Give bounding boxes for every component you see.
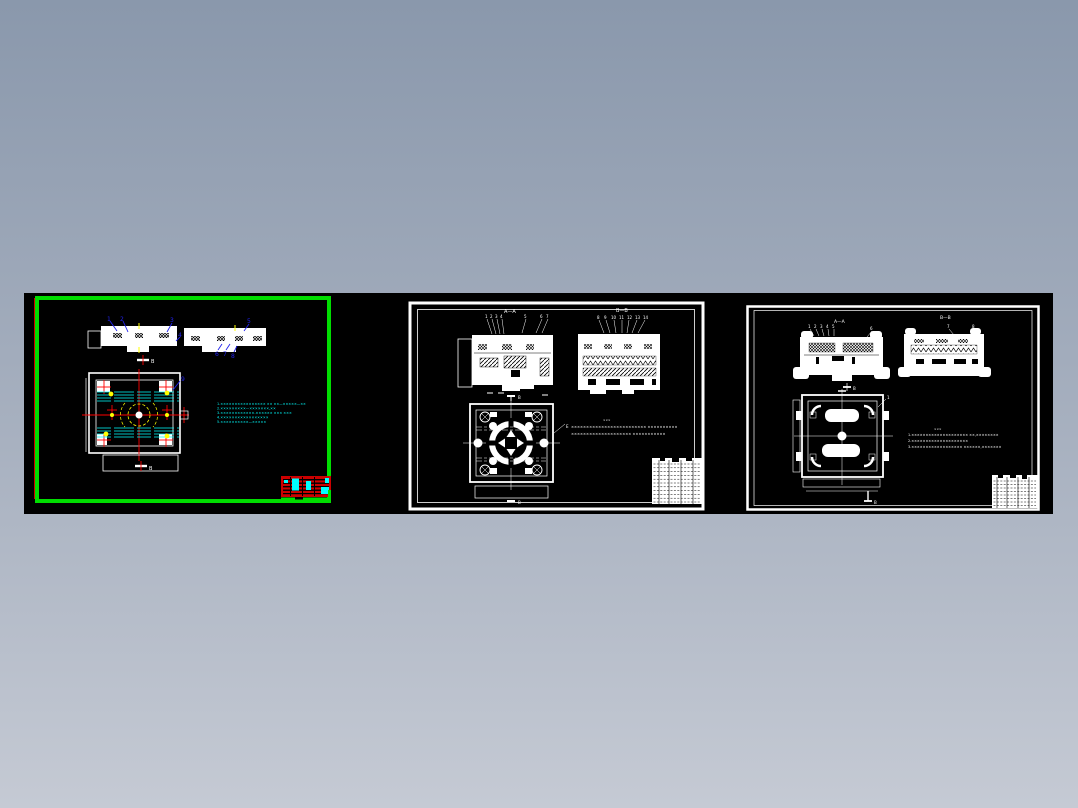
section-mark-top: B bbox=[137, 355, 155, 365]
note-line: 4.××××××××××××××××× bbox=[217, 416, 269, 420]
note-line: 3.×××××××××××××××××× ××××××,××××××× bbox=[908, 445, 1002, 449]
notes-header: ××× bbox=[603, 418, 611, 422]
callout: 3 bbox=[820, 324, 823, 329]
section-view-top: 1 2 3 4 5 6 7 8 B bbox=[88, 316, 266, 365]
callout: 9 bbox=[604, 315, 607, 320]
section-letter-top: B bbox=[518, 395, 521, 400]
callout: 8 bbox=[597, 315, 600, 320]
callout: 1 bbox=[808, 324, 811, 329]
section-letter-bottom: B bbox=[874, 500, 877, 505]
callout-leaders bbox=[487, 319, 645, 334]
callout-1: 1 bbox=[107, 316, 111, 323]
note-line: ××××××××××××××××××××××××× ×××××××××× bbox=[571, 425, 678, 429]
cad-sheet-1: 1 2 3 4 5 6 7 8 B bbox=[39, 300, 327, 499]
callout: 4 bbox=[500, 314, 503, 319]
callout-6: 6 bbox=[215, 351, 219, 358]
notes-block: 1.×××××××××××××××× ×× ××—×××××—×× 2.××××… bbox=[217, 402, 306, 424]
callout: 12 bbox=[627, 315, 633, 320]
note-line: ×××××××××××××××××××× ××××××××××× bbox=[571, 432, 666, 436]
callout-7: 7 bbox=[223, 351, 227, 358]
callout: 6 bbox=[870, 326, 873, 331]
note-line: 2.×××××××××××××××××××× bbox=[908, 439, 968, 443]
view-title-b: B—B bbox=[940, 315, 951, 321]
callout: 4 bbox=[826, 324, 829, 329]
callout-2: 2 bbox=[120, 316, 124, 323]
callout: 7 bbox=[947, 324, 950, 329]
section-view-a bbox=[458, 335, 553, 393]
drawing-thumbnail-2[interactable]: 1 2 3 4 5 6 7 8 9 10 11 12 13 14 A—A B—B bbox=[408, 300, 705, 512]
sheet-inner-border bbox=[754, 311, 1032, 506]
callout-4: 4 bbox=[178, 332, 182, 339]
plan-view: B B E bbox=[463, 395, 569, 505]
view-title-a: A—A bbox=[834, 319, 846, 325]
section-mark-mid: B bbox=[843, 383, 856, 391]
callout-3: 3 bbox=[170, 317, 174, 324]
section-view-a: B bbox=[793, 331, 890, 391]
callout: 1 bbox=[485, 314, 488, 319]
callout-8: 8 bbox=[231, 353, 235, 360]
note-line: 1.×××××××××××××××× ×× ××—×××××—×× bbox=[217, 402, 306, 406]
drawing-thumbnail-3[interactable]: B bbox=[746, 305, 1040, 511]
callout: 3 bbox=[495, 314, 498, 319]
callout: 2 bbox=[490, 314, 493, 319]
view-title-a: A—A bbox=[504, 309, 516, 315]
desktop-background: 1 2 3 4 5 6 7 8 B bbox=[0, 0, 1078, 808]
callout-9: 9 bbox=[181, 376, 185, 383]
section-view-b bbox=[542, 334, 660, 395]
cad-sheet-3: B bbox=[746, 305, 1040, 511]
callout: 10 bbox=[611, 315, 617, 320]
notes-block: ××× ××××××××××××××××××××××××× ××××××××××… bbox=[571, 418, 678, 436]
section-letter-bottom: B bbox=[149, 466, 153, 472]
notes-block: ××× 1.×××××××××××××××××××× ××,×××××××× 2… bbox=[908, 427, 1002, 449]
note-line: 2.×××××××××—×××××××,×× bbox=[217, 407, 276, 411]
section-mark-bottom: B bbox=[135, 461, 153, 472]
callout: 2 bbox=[814, 324, 817, 329]
view-title-b: B—B bbox=[616, 308, 628, 314]
section-letter-bottom: B bbox=[518, 500, 521, 505]
note-line: 3.××××××××××××-×××××× ××× ××× bbox=[217, 411, 292, 415]
callout: 11 bbox=[619, 315, 625, 320]
callout: 13 bbox=[635, 315, 641, 320]
plan-callout: 1 bbox=[887, 395, 890, 400]
cad-sheet-2: 1 2 3 4 5 6 7 8 9 10 11 12 13 14 A—A B—B bbox=[408, 300, 705, 512]
parts-table bbox=[992, 475, 1038, 508]
drawing-filmstrip: 1 2 3 4 5 6 7 8 B bbox=[24, 293, 1053, 514]
section-view-b bbox=[898, 328, 991, 377]
parts-table bbox=[652, 458, 702, 504]
callout: 5 bbox=[524, 314, 527, 319]
drawing-thumbnail-1-selected[interactable]: 1 2 3 4 5 6 7 8 B bbox=[35, 296, 331, 503]
notes-header: ××× bbox=[934, 427, 942, 431]
leader-label: E bbox=[566, 424, 569, 429]
section-letter-mid: B bbox=[853, 386, 856, 391]
title-block bbox=[281, 476, 331, 500]
plan-view: B 1 bbox=[793, 389, 893, 505]
section-letter-top: B bbox=[151, 359, 155, 365]
note-line: 1.×××××××××××××××××××× ××,×××××××× bbox=[908, 433, 999, 437]
note-line: 5.××××××××××—××××× bbox=[217, 420, 266, 424]
callout: 7 bbox=[546, 314, 549, 319]
plan-view: 9 B bbox=[82, 369, 189, 472]
callout: 14 bbox=[643, 315, 649, 320]
callout: 6 bbox=[540, 314, 543, 319]
callout-5: 5 bbox=[247, 318, 251, 325]
